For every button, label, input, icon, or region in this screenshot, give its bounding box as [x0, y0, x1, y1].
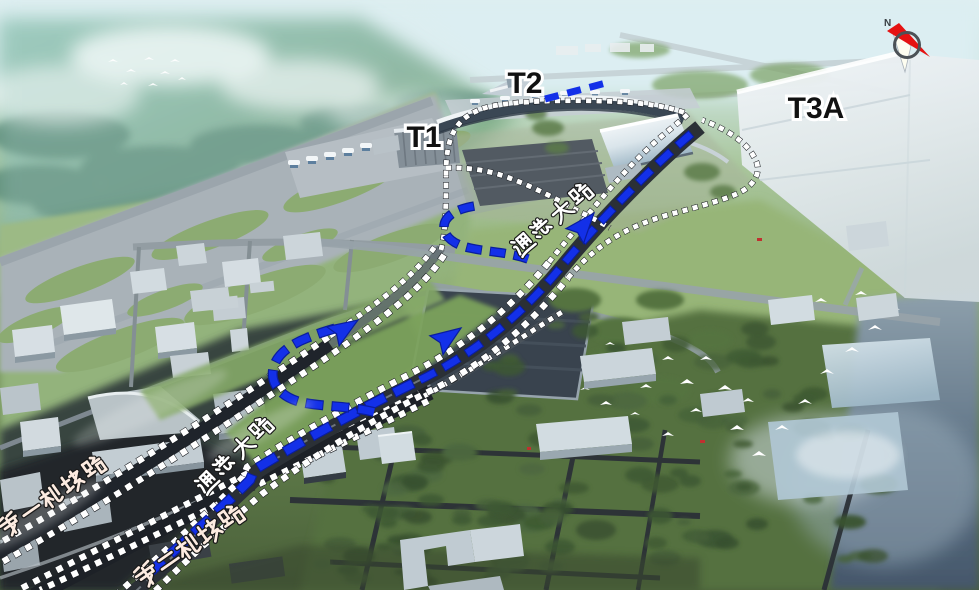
svg-text:T3A: T3A	[788, 92, 845, 125]
svg-text:N: N	[884, 18, 891, 29]
svg-text:T1: T1	[406, 121, 441, 154]
svg-text:T2: T2	[507, 67, 542, 100]
